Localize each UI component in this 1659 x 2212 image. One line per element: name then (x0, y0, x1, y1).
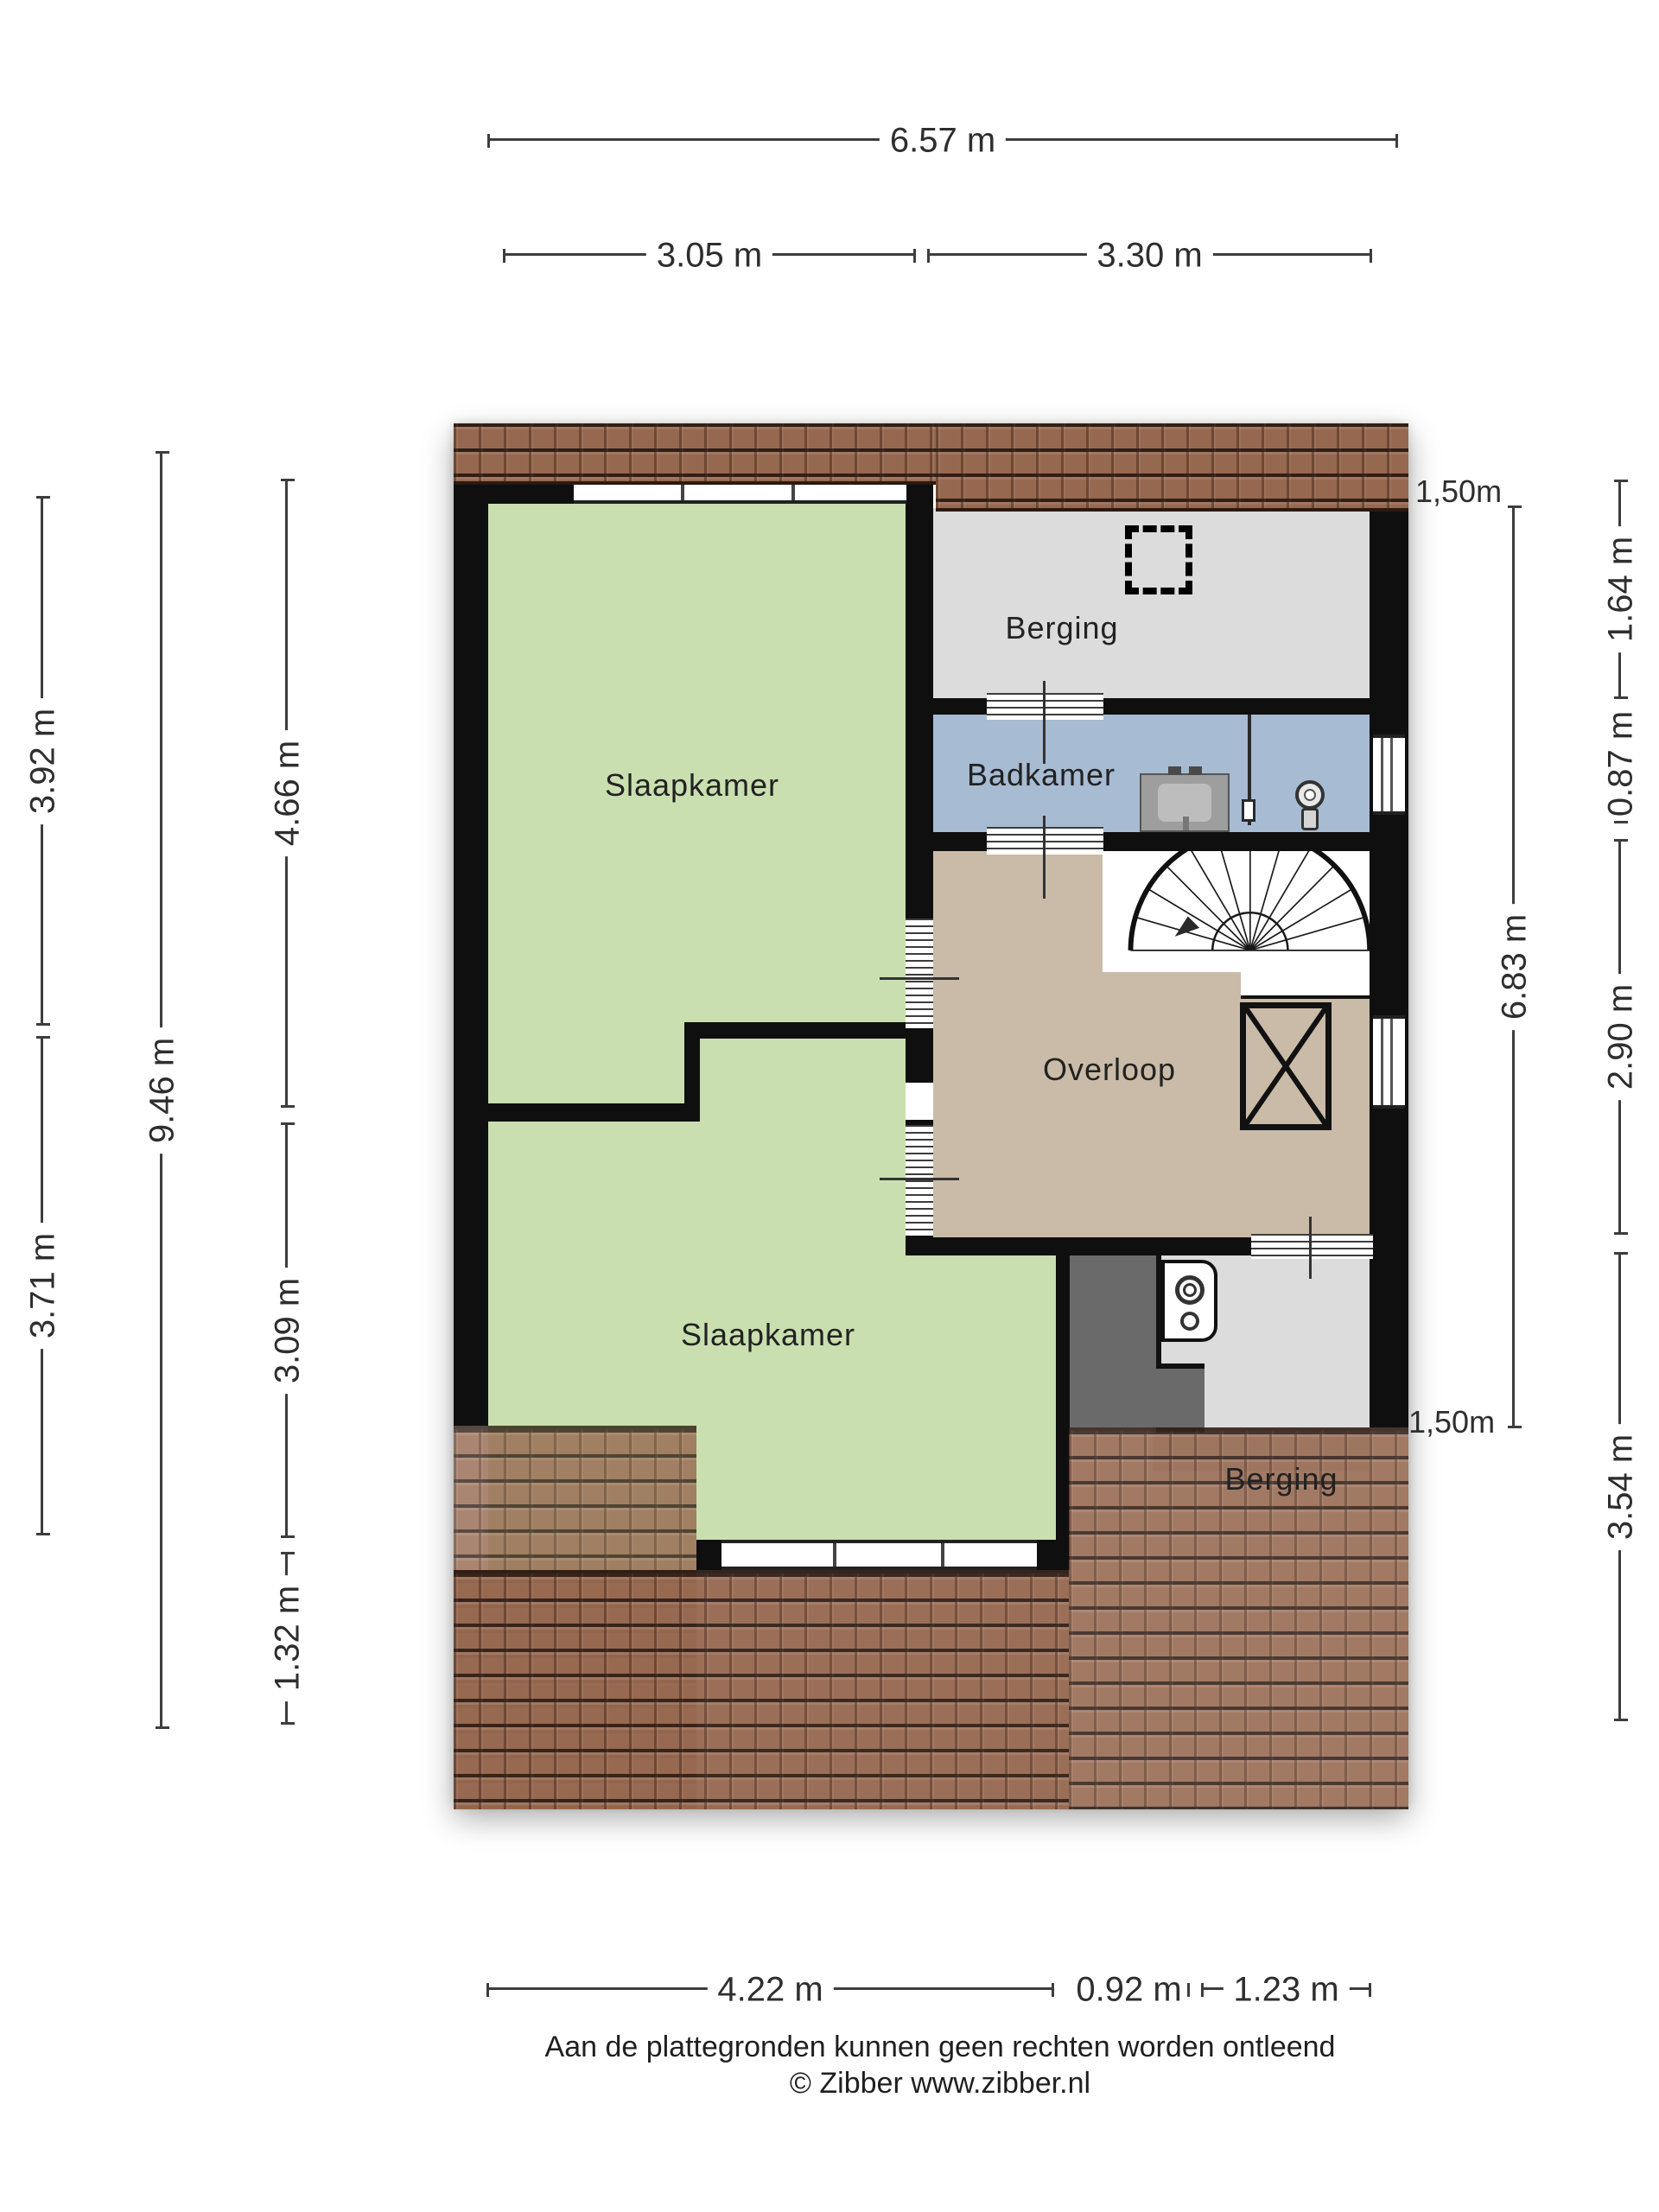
opening-tick-3 (880, 977, 959, 980)
roof-bottom-middle (454, 1570, 1069, 1809)
mechanical-unit (1161, 1260, 1217, 1342)
staircase (1103, 851, 1370, 972)
door-opening-bedroom-bottom (906, 1083, 933, 1120)
duct-shaft (1069, 1255, 1161, 1427)
label-knee-wall-top: 1,50m (1415, 474, 1502, 510)
dim-label: 0.92 m (1065, 1971, 1192, 2010)
dim-label: 4.66 m (269, 730, 308, 856)
washbasin-drain (1183, 817, 1189, 830)
dim-label: 0.87 m (1602, 701, 1641, 827)
dim-bottom-left-width: 4.22 m (487, 1987, 1053, 1990)
dim-right-outer-4: 3.54 m (1618, 1253, 1621, 1720)
dim-left-inner-lower: 3.09 m (285, 1123, 288, 1537)
dim-label: 6.57 m (880, 122, 1006, 161)
dim-label: 1.64 m (1602, 526, 1641, 652)
dim-label: 3.54 m (1602, 1423, 1641, 1549)
dim-left-total-height: 9.46 m (160, 452, 162, 1728)
dim-bottom-mid-width: 0.92 m (1069, 1987, 1189, 1990)
faucet-icon (1168, 766, 1181, 775)
dim-right-outer-1: 1.64 m (1618, 480, 1621, 698)
window-right-bathroom (1373, 734, 1405, 815)
wall-bedroom-divider-left (454, 1103, 700, 1122)
opening-bedroom-top-door (906, 918, 933, 1028)
label-storage-top: Berging (1005, 610, 1118, 646)
footer-credit: © Zibber www.zibber.nl (456, 2067, 1424, 2101)
window-bedroom-bottom (721, 1540, 1037, 1570)
dim-top-left-width: 3.05 m (504, 253, 915, 256)
opening-tick-1 (1043, 681, 1046, 764)
dim-left-outer-upper: 3.92 m (41, 497, 43, 1025)
dim-label: 3.92 m (24, 697, 63, 823)
wall-interior-mid (906, 1028, 933, 1083)
label-knee-wall-bottom: 1,50m (1408, 1404, 1495, 1440)
dim-label: 1.23 m (1223, 1971, 1349, 2010)
opening-landing-storage (1251, 1234, 1373, 1259)
room-bedroom-bottom-notch (700, 1039, 906, 1122)
dim-label: 9.46 m (143, 1027, 182, 1153)
dim-overall-width: 6.57 m (488, 138, 1397, 141)
dim-label: 3.30 m (1086, 237, 1212, 276)
wall-left-exterior (454, 481, 488, 1426)
bathroom-door-handle (1242, 799, 1255, 822)
washbasin (1140, 773, 1230, 832)
opening-tick-2 (1043, 816, 1046, 899)
roof-top-right (936, 423, 1408, 512)
toilet-foot (1301, 808, 1319, 830)
roof-top-left (454, 423, 936, 485)
floorplan-page: Slaapkamer Berging Badkamer Overloop Sla… (0, 0, 1659, 2212)
duct-shaft-extension (1156, 1363, 1205, 1433)
dim-top-right-width: 3.30 m (928, 253, 1371, 256)
stair-landing-strip (1241, 972, 1370, 999)
window-mullion (833, 1543, 836, 1567)
room-bedroom-top (488, 504, 913, 1103)
label-storage-bottom: Berging (1224, 1461, 1338, 1497)
dim-label: 6.83 m (1496, 904, 1535, 1030)
window-mullion (791, 485, 795, 500)
dim-left-inner-upper: 4.66 m (285, 480, 288, 1107)
window-jamb-left (696, 1540, 721, 1570)
window-mullion (681, 485, 684, 500)
unit-circle-small (1180, 1312, 1199, 1331)
dim-left-outer-lower: 3.71 m (41, 1037, 43, 1535)
dim-label: 1.32 m (269, 1575, 308, 1701)
stair-direction-arrow (1175, 916, 1200, 936)
wall-interior-upper (906, 504, 933, 918)
dim-left-inner-bottom: 1.32 m (285, 1553, 288, 1724)
wall-right-exterior (1370, 508, 1408, 1427)
label-landing: Overloop (1043, 1052, 1176, 1088)
opening-tick-4 (880, 1178, 959, 1180)
toilet (1294, 780, 1327, 834)
dim-label: 3.71 m (24, 1223, 63, 1349)
dim-label: 3.09 m (269, 1267, 308, 1393)
window-right-landing (1373, 1015, 1405, 1109)
wall-landing-storage (933, 1237, 1251, 1255)
dim-label: 2.90 m (1602, 974, 1641, 1100)
wall-notch-top (684, 1022, 906, 1039)
wall-bedroom-bottom-right (1056, 1255, 1070, 1567)
void-x-icon (1246, 1008, 1325, 1124)
dim-label: 3.05 m (646, 237, 772, 276)
label-bedroom-bottom: Slaapkamer (681, 1317, 855, 1353)
faucet-icon (1189, 766, 1202, 775)
spiral-stair-icon (1103, 851, 1370, 972)
window-mullion (941, 1543, 944, 1567)
window-jamb-right (1037, 1540, 1070, 1570)
dim-right-inner-height: 6.83 m (1512, 506, 1515, 1427)
label-bedroom-top: Slaapkamer (605, 767, 779, 804)
unit-ring-inner (1183, 1283, 1197, 1297)
opening-tick-5 (1309, 1217, 1312, 1279)
chimney (1125, 525, 1192, 594)
dim-right-outer-3: 2.90 m (1618, 840, 1621, 1234)
void-box (1240, 1002, 1332, 1130)
toilet-bowl-inner (1304, 789, 1316, 801)
opening-bedroom-bottom-window (906, 1125, 933, 1236)
dim-bottom-right-width: 1.23 m (1202, 1987, 1370, 1990)
dim-right-outer-2: 0.87 m (1618, 705, 1621, 823)
label-bathroom: Badkamer (967, 757, 1116, 793)
dim-label: 4.22 m (707, 1971, 833, 2010)
footer-disclaimer: Aan de plattegronden kunnen geen rechten… (456, 2031, 1424, 2064)
